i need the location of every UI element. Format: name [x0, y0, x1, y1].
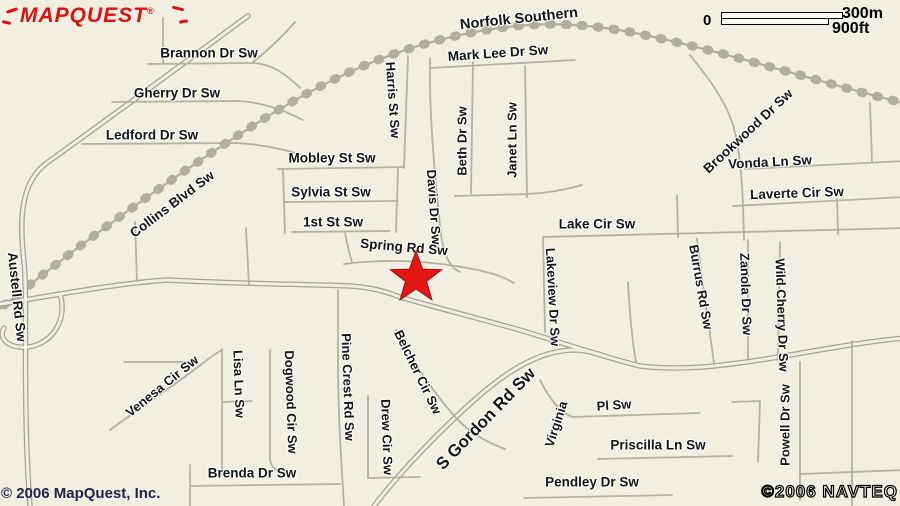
street-label-pendley-dr-sw: Pendley Dr Sw [545, 475, 639, 490]
street-label-janet-ln-sw: Janet Ln Sw [505, 102, 520, 178]
street-label-1st-st-sw: 1st St Sw [303, 215, 363, 230]
street-label-priscilla-ln-sw: Priscilla Ln Sw [610, 438, 705, 453]
location-marker[interactable] [386, 248, 446, 308]
street-label-lisa-ln-sw: Lisa Ln Sw [230, 350, 247, 418]
street-label-brannon-dr-sw: Brannon Dr Sw [160, 46, 258, 61]
scale-zero-label: 0 [703, 12, 711, 29]
street-label-zanola-dr-sw: Zanola Dr Sw [737, 253, 755, 336]
street-label-pl-sw: Pl Sw [596, 396, 632, 413]
street-label-brenda-dr-sw: Brenda Dr Sw [208, 466, 297, 481]
road-network [0, 0, 900, 506]
street-label-powell-dr-sw: Powell Dr Sw [778, 384, 793, 466]
map-canvas[interactable]: Norfolk SouthernBrannon Dr SwMark Lee Dr… [0, 0, 900, 506]
street-label-gherry-dr-sw: Gherry Dr Sw [134, 86, 220, 101]
scale-bar-imperial [721, 18, 829, 25]
street-label-sylvia-st-sw: Sylvia St Sw [291, 185, 371, 200]
mapquest-logo-text: MAPQUEST [20, 4, 147, 27]
street-label-ledford-dr-sw: Ledford Dr Sw [106, 128, 198, 143]
location-star-icon [386, 248, 446, 308]
navteq-copyright: ©2006 NAVTEQ [761, 482, 898, 502]
scale-imperial-label: 900ft [832, 20, 869, 38]
street-label-beth-dr-sw: Beth Dr Sw [455, 106, 470, 175]
mapquest-copyright: © 2006 MapQuest, Inc. [1, 485, 160, 502]
street-label-drew-cir-sw: Drew Cir Sw [378, 399, 396, 475]
street-label-mobley-st-sw: Mobley St Sw [288, 151, 375, 166]
mapquest-logo: MAPQUEST® [20, 4, 155, 28]
registered-mark: ® [147, 6, 155, 16]
street-label-lake-cir-sw: Lake Cir Sw [559, 217, 636, 232]
